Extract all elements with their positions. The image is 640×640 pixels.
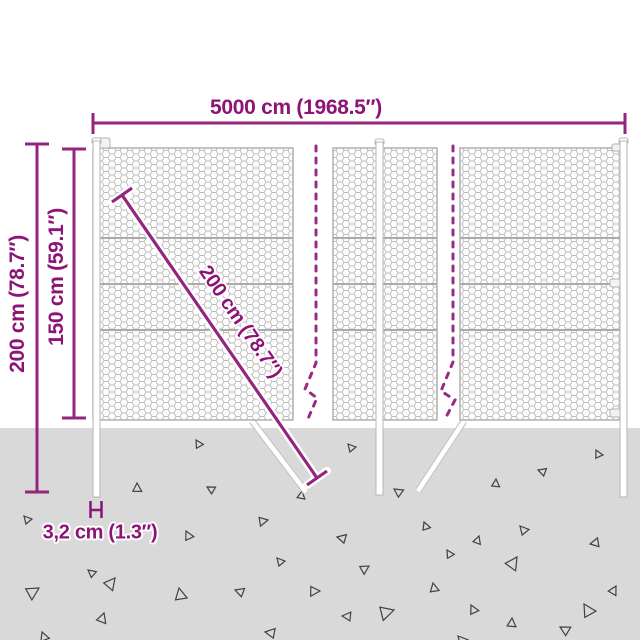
ground-triangle	[88, 569, 97, 578]
ground-triangle	[594, 450, 604, 460]
ground-triangle	[95, 613, 109, 627]
ground-triangle	[39, 632, 51, 640]
ground-triangle	[472, 536, 483, 547]
ground-triangle	[296, 491, 307, 502]
ground-triangle	[375, 604, 394, 623]
fence-post-left	[92, 138, 101, 497]
label-post-diameter: 3,2 cm (1.3″)	[43, 522, 158, 545]
label-total-height: 200 cm (78.7″)	[6, 235, 30, 373]
ground-triangle	[24, 586, 39, 601]
ground-triangle	[446, 550, 455, 559]
dimension-marker-post-diameter	[91, 501, 102, 518]
ground-triangle	[394, 487, 405, 498]
ground-triangle	[504, 557, 520, 573]
fence-panel-2	[333, 148, 437, 420]
ground-triangle	[131, 483, 144, 496]
ground-triangle	[235, 586, 247, 598]
ground-triangle	[337, 532, 350, 545]
ground-triangle	[173, 588, 189, 604]
ground-triangle	[342, 610, 355, 623]
fence-panel-3	[460, 148, 620, 420]
ground-triangle	[608, 586, 620, 598]
ground-triangle	[458, 636, 468, 640]
ground-triangle	[429, 583, 441, 595]
break-line-right	[441, 146, 455, 421]
ground-triangle	[306, 585, 320, 599]
ground-triangle	[359, 564, 369, 574]
ground-triangle	[520, 526, 529, 535]
ground-triangle	[582, 604, 597, 619]
fence-post-middle	[375, 139, 384, 495]
ground-triangle	[590, 536, 602, 548]
fence-dimension-diagram: 5000 cm (1968.5″) 200 cm (78.7″) 150 cm …	[0, 0, 640, 640]
ground-triangle	[490, 479, 501, 490]
break-line-left	[305, 146, 317, 421]
ground-triangle	[348, 444, 356, 452]
label-total-width: 5000 cm (1968.5″)	[210, 96, 382, 120]
ground-triangle	[265, 626, 279, 640]
ground-triangle	[421, 522, 431, 532]
ground-triangle	[277, 558, 285, 566]
fence-post-right	[619, 138, 628, 497]
ground-triangle	[469, 605, 480, 616]
ground-triangle	[184, 531, 195, 542]
ground-triangle	[560, 624, 573, 637]
fence-panel-1	[93, 148, 293, 420]
ground-triangle	[103, 578, 117, 592]
ground-triangle	[256, 516, 268, 528]
ground-triangle	[506, 618, 519, 631]
support-strut-right	[418, 421, 464, 491]
label-fence-height: 150 cm (59.1″)	[45, 208, 69, 346]
ground-triangle	[24, 516, 32, 524]
ground-triangle	[195, 440, 204, 449]
ground-triangle	[207, 484, 217, 494]
ground-triangle	[538, 466, 549, 477]
